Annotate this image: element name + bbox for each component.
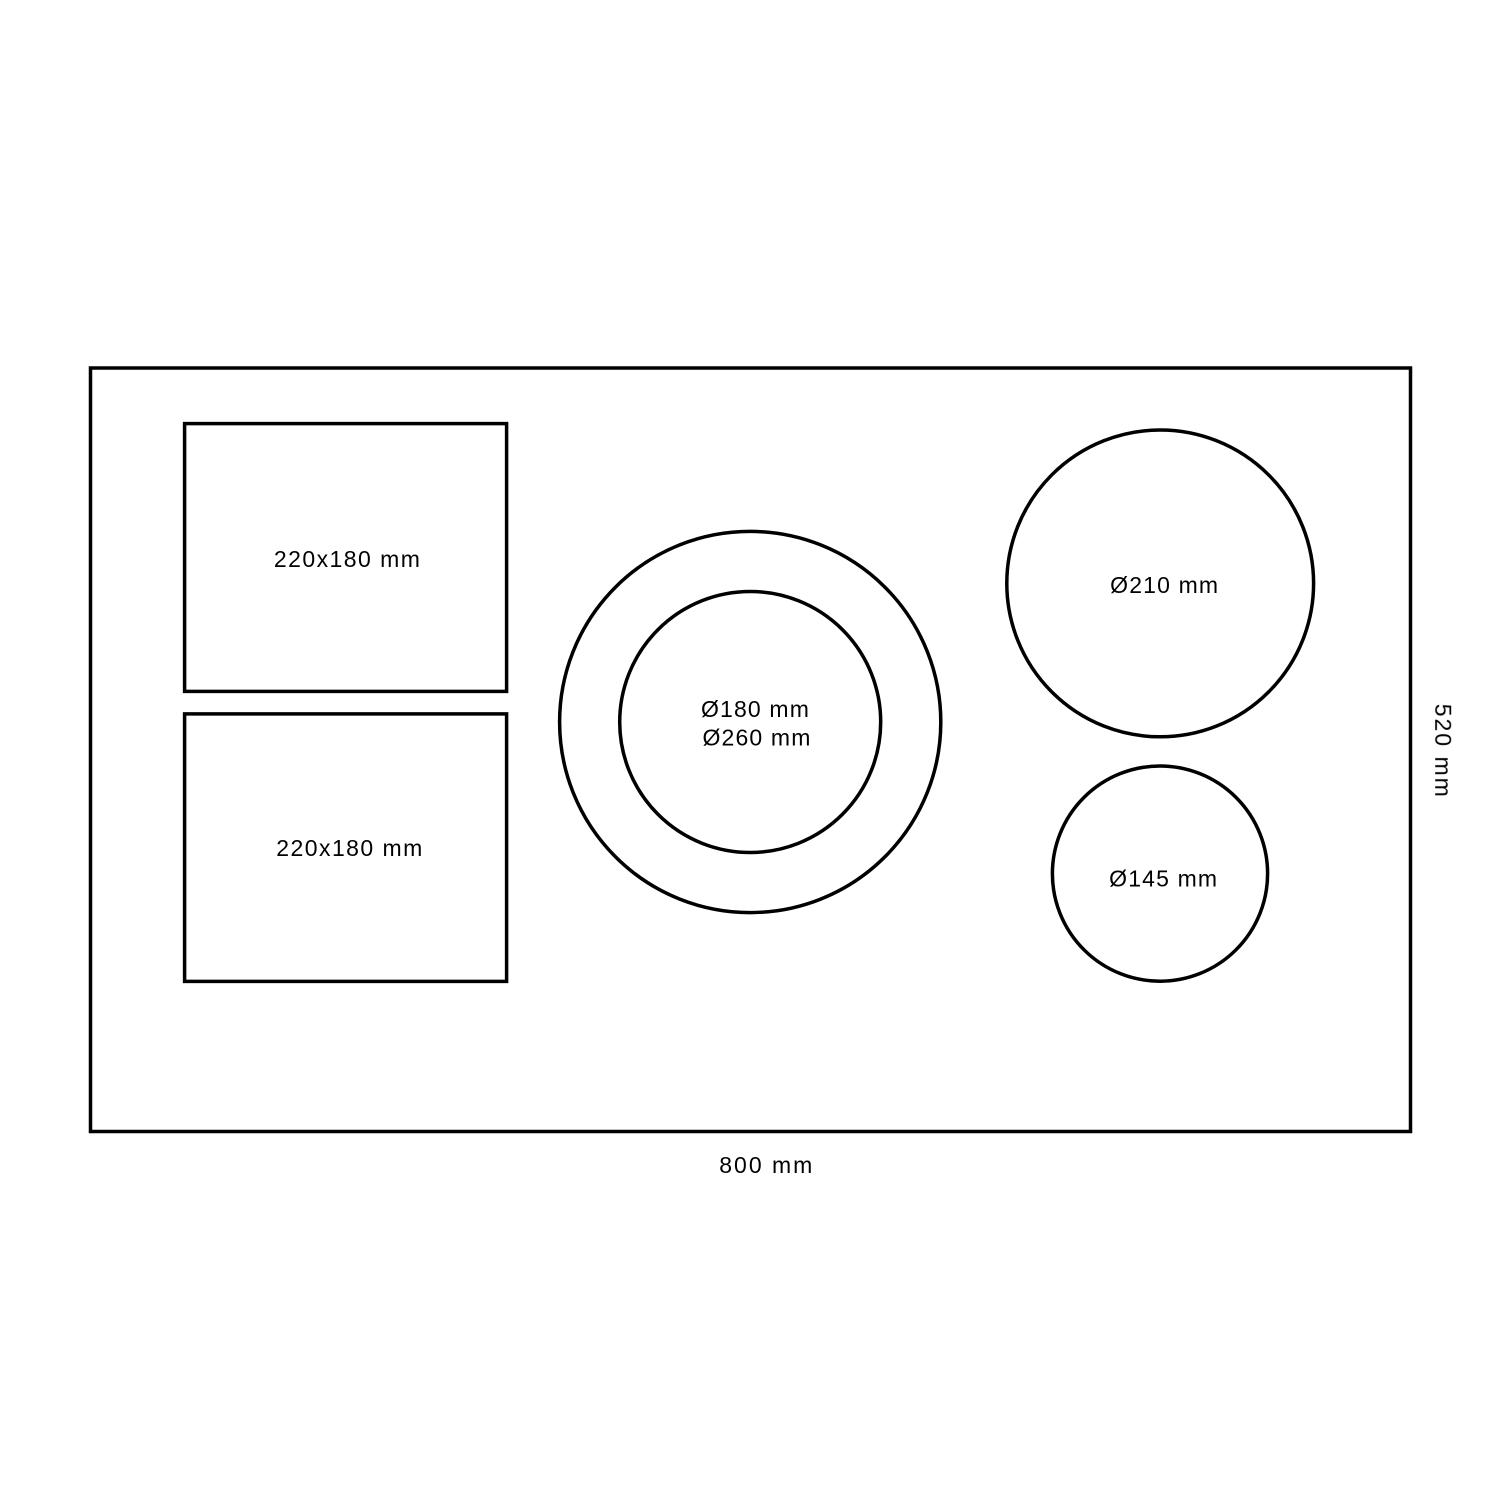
svg-text:520 mm: 520 mm bbox=[1430, 704, 1456, 799]
svg-text:Ø180 mm: Ø180 mm bbox=[701, 696, 810, 722]
svg-text:220x180 mm: 220x180 mm bbox=[276, 835, 423, 861]
svg-text:Ø145 mm: Ø145 mm bbox=[1109, 866, 1218, 892]
svg-text:800 mm: 800 mm bbox=[719, 1152, 814, 1178]
svg-text:Ø210 mm: Ø210 mm bbox=[1110, 572, 1219, 598]
svg-text:Ø260 mm: Ø260 mm bbox=[702, 725, 811, 751]
svg-text:220x180 mm: 220x180 mm bbox=[274, 546, 421, 572]
